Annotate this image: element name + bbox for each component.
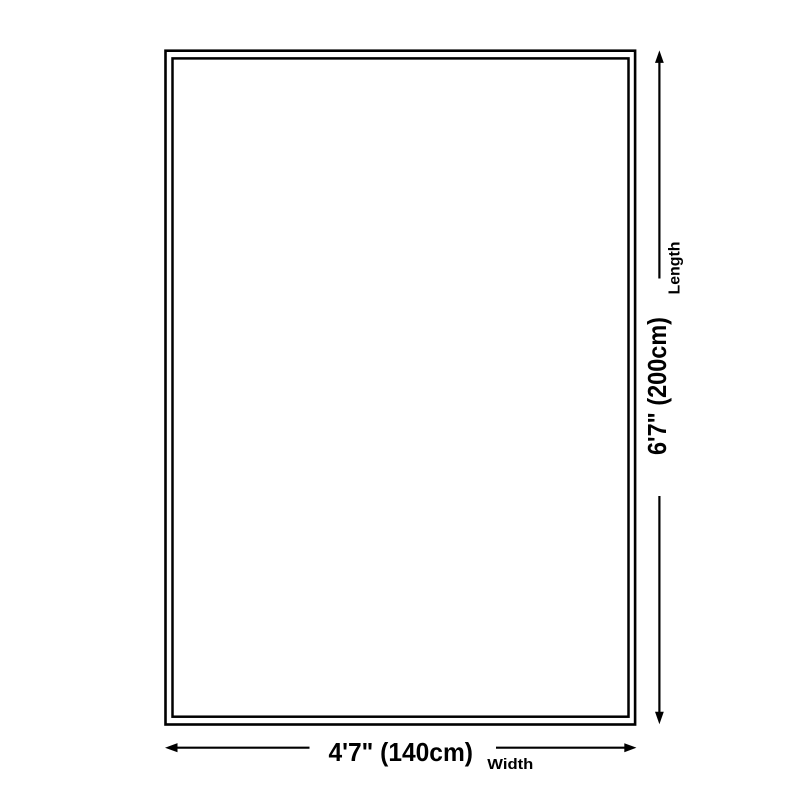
svg-text:Width: Width: [487, 756, 533, 773]
svg-text:4'7" (140cm): 4'7" (140cm): [329, 737, 474, 767]
svg-text:6'7" (200cm): 6'7" (200cm): [642, 317, 672, 455]
svg-text:Length: Length: [667, 242, 684, 295]
